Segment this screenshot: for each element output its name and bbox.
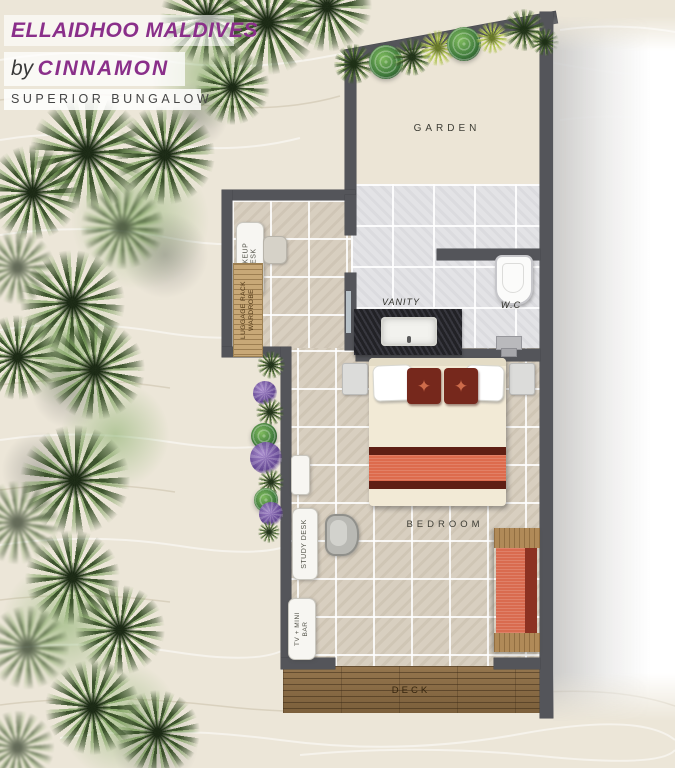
resort-title: ELLAIDHOO MALDIVES (11, 19, 258, 43)
nightstand-right (509, 363, 535, 395)
toilet-seat (502, 263, 524, 293)
pillow-star-right: ✦ (444, 368, 478, 404)
day-bed-wood-top (494, 528, 540, 548)
day-bed-bolster (525, 548, 537, 633)
desk-chair (325, 514, 359, 556)
bed-runner-border-top (369, 447, 506, 455)
garden-plant (334, 44, 374, 84)
door-leaf (346, 291, 351, 333)
star-motif-icon: ✦ (417, 378, 431, 395)
faucet-icon (407, 336, 411, 343)
flush-unit-base (501, 348, 517, 357)
wall-bedroom-bottom-right (494, 658, 540, 669)
wc-label: W.C (501, 300, 521, 310)
brand-name: CINNAMON (38, 57, 170, 80)
day-bed-cushion (496, 548, 525, 633)
wardrobe-label: LUGGAGE RACK WARDROBE (240, 281, 256, 339)
vanity-sink (381, 317, 437, 346)
wall-shelf (291, 455, 310, 495)
bed-runner (369, 455, 506, 481)
wall-bath-divider-upper (345, 195, 356, 235)
bed-runner-border-bottom (369, 481, 506, 489)
vanity-label: VANITY (382, 297, 420, 307)
tv-minibar-unit: TV + MINI BAR (288, 598, 316, 660)
bed: ✦ ✦ (369, 358, 506, 506)
wall-right (540, 12, 553, 718)
vanity-counter (354, 309, 462, 355)
wall-dressing-top (222, 190, 355, 200)
study-desk-label: STUDY DESK (301, 519, 309, 569)
day-bed-wood-bottom (494, 633, 540, 652)
desk-chair-seat (330, 520, 347, 546)
beach-light-gradient (553, 16, 675, 722)
toilet (495, 255, 533, 305)
garden-label: GARDEN (414, 123, 481, 134)
bedroom-label: BEDROOM (406, 519, 483, 530)
deck-label: DECK (392, 685, 430, 696)
wardrobe-luggage-rack: LUGGAGE RACK WARDROBE (233, 263, 263, 357)
pillow-star-left: ✦ (407, 368, 441, 404)
brand-by: by (11, 57, 33, 80)
floor-plan: MAKEUP DESK LUGGAGE RACK WARDROBE ✦ ✦ (0, 0, 675, 768)
tv-minibar-label: TV + MINI BAR (294, 612, 310, 646)
room-type-label: SUPERIOR BUNGALOW (11, 92, 212, 106)
makeup-stool (263, 236, 287, 264)
star-motif-icon: ✦ (454, 378, 468, 395)
study-desk: STUDY DESK (292, 508, 318, 580)
day-bed (494, 528, 540, 652)
wall-dressing-left (222, 190, 232, 357)
nightstand-left (342, 363, 368, 395)
brand-line: by CINNAMON (11, 57, 169, 81)
